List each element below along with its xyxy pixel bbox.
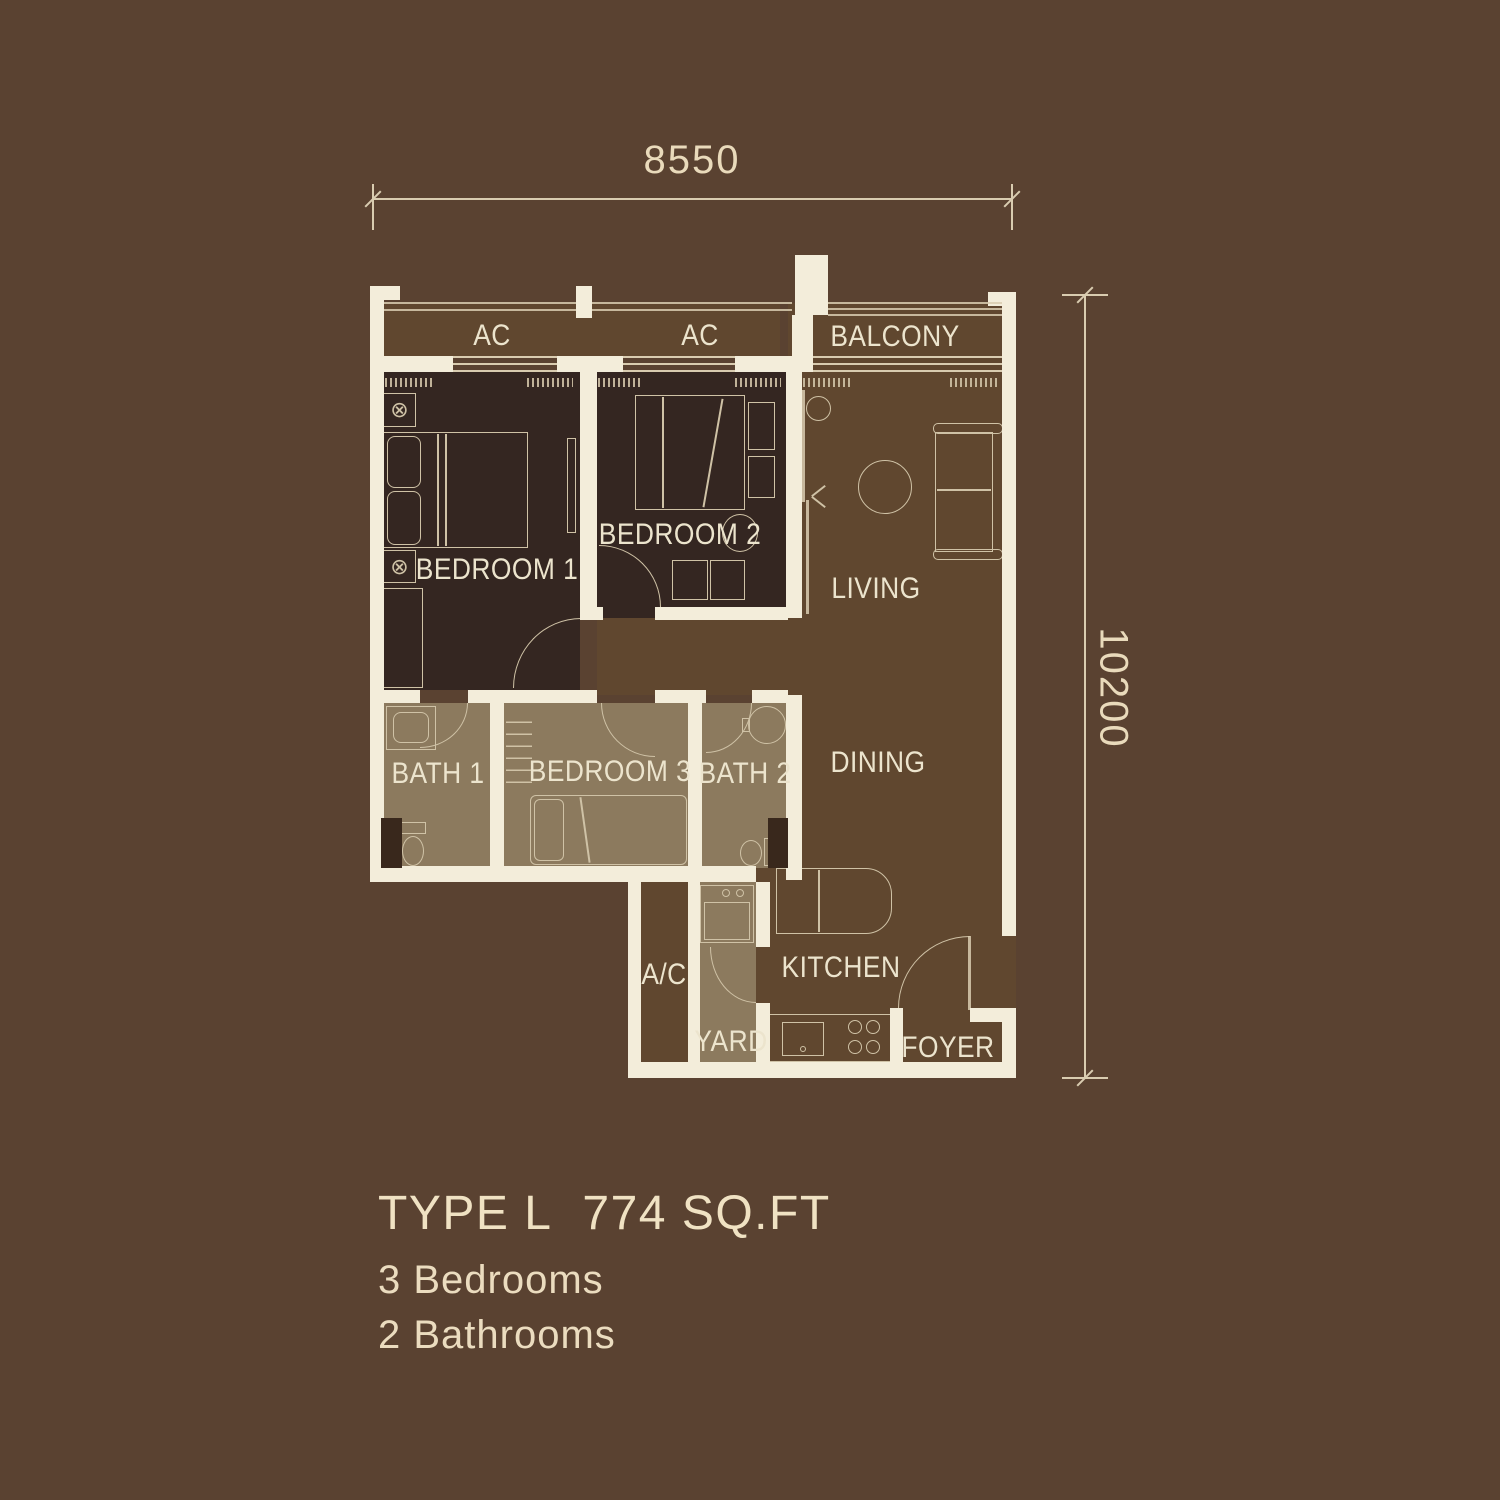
unit-type-label: TYPE L	[378, 1187, 552, 1240]
window-hatch	[385, 378, 432, 387]
bedroom-count-label: 3 Bedrooms	[378, 1258, 604, 1303]
wall	[597, 607, 603, 620]
wall	[370, 286, 384, 882]
window-hatch	[950, 378, 997, 387]
dimension-extension	[372, 184, 374, 230]
floor-plan-page: ⊗ ⊗	[0, 0, 1500, 1500]
sliding-door-panel	[806, 500, 809, 614]
entrance-door-leaf	[968, 936, 971, 1010]
stove-burner-icon	[866, 1020, 880, 1034]
sofa-armrest	[933, 549, 1003, 560]
room-label-ac-right: AC	[681, 319, 719, 353]
room-label-bedroom1: BEDROOM 1	[416, 553, 578, 587]
sofa-seat-line	[937, 489, 991, 491]
desk-icon	[710, 560, 745, 600]
washer-knob	[736, 889, 744, 897]
wall	[970, 1008, 1002, 1022]
dimension-extension	[1011, 184, 1013, 230]
width-dimension-label: 8550	[644, 138, 741, 183]
balcony-notch-wall	[795, 255, 828, 315]
sink-drain	[800, 1046, 806, 1052]
stove-burner-icon	[848, 1020, 862, 1034]
service-shaft	[381, 818, 402, 868]
window-hatch	[803, 378, 850, 387]
window-glass	[623, 356, 735, 372]
height-dimension-line	[1084, 295, 1086, 1078]
unit-area-label: 774 SQ.FT	[582, 1187, 830, 1240]
wall	[752, 690, 788, 703]
wall	[655, 690, 706, 703]
room-label-balcony: BALCONY	[830, 320, 959, 354]
stool-icon	[806, 396, 831, 421]
wall	[580, 370, 597, 620]
ac-unit-icon: ⊗	[383, 550, 416, 583]
toilet-icon	[398, 822, 426, 834]
wall	[490, 703, 504, 868]
wardrobe-icon	[382, 588, 423, 688]
stove-burner-icon	[848, 1040, 862, 1054]
wall	[1002, 292, 1016, 936]
window-wall	[735, 356, 792, 372]
wall	[370, 690, 420, 703]
parapet-line	[828, 302, 1002, 304]
room-label-kitchen: KITCHEN	[782, 951, 901, 985]
fan-glyph: ⊗	[390, 556, 408, 578]
service-shaft	[768, 818, 788, 868]
window-hatch	[735, 378, 781, 387]
stove-burner-icon	[866, 1040, 880, 1054]
balcony-sliding-glass	[813, 356, 1002, 372]
height-dimension-label: 10200	[1091, 627, 1136, 748]
pillow-icon	[534, 799, 564, 861]
room-label-bedroom3: BEDROOM 3	[529, 755, 691, 789]
parapet-line	[828, 308, 1002, 310]
sofa-icon	[935, 432, 993, 552]
parapet-line	[384, 309, 576, 311]
window-wall	[370, 356, 453, 372]
pillow-icon	[387, 436, 421, 488]
width-dimension-line	[373, 198, 1013, 200]
wall	[756, 882, 770, 947]
fan-glyph: ⊗	[390, 399, 408, 421]
parapet-line	[592, 309, 792, 311]
bed-double-icon	[635, 395, 745, 510]
wall	[628, 882, 641, 1062]
washer-knob	[722, 889, 730, 897]
room-label-living: LIVING	[831, 572, 920, 606]
balcony-notch-wall	[792, 315, 813, 372]
room-label-yard: YARD	[694, 1025, 767, 1059]
bed-headboard-line	[662, 397, 664, 508]
pillow-icon	[387, 491, 421, 545]
sliding-wardrobe-icon	[567, 438, 576, 533]
room-label-bath2: BATH 2	[698, 757, 791, 791]
corridor-floor	[597, 618, 788, 695]
room-label-bedroom2: BEDROOM 2	[599, 518, 761, 552]
wall	[655, 607, 788, 620]
wall	[576, 286, 592, 318]
room-label-bath1: BATH 1	[391, 757, 484, 791]
desk-icon	[672, 560, 708, 600]
sliding-door-panel	[802, 390, 805, 502]
bathroom-count-label: 2 Bathrooms	[378, 1313, 616, 1358]
wall	[786, 370, 802, 618]
counter-divider-line	[818, 870, 820, 932]
sink-icon	[748, 706, 786, 744]
wardrobe-icon	[748, 402, 775, 450]
washer-drum	[704, 902, 750, 940]
parapet-line	[384, 302, 576, 304]
bed-sheet-line	[437, 434, 439, 546]
ac-unit-icon: ⊗	[383, 393, 416, 427]
wardrobe-icon	[748, 456, 775, 498]
room-label-foyer: FOYER	[901, 1031, 994, 1065]
parapet-line	[828, 314, 1002, 316]
parapet-line	[592, 302, 792, 304]
wall	[468, 690, 597, 703]
toilet-bowl	[402, 836, 424, 866]
room-label-ac-left: AC	[473, 319, 511, 353]
coffee-table-icon	[858, 460, 912, 514]
room-label-ac-ledge: A/C	[641, 958, 686, 992]
window-glass	[453, 356, 557, 372]
wall	[370, 866, 756, 882]
room-label-dining: DINING	[830, 746, 925, 780]
unit-title: TYPE L774 SQ.FT	[378, 1186, 831, 1241]
window-hatch	[527, 378, 573, 387]
window-hatch	[598, 378, 642, 387]
bed-sheet-line	[445, 434, 447, 546]
toilet-bowl	[740, 840, 762, 866]
